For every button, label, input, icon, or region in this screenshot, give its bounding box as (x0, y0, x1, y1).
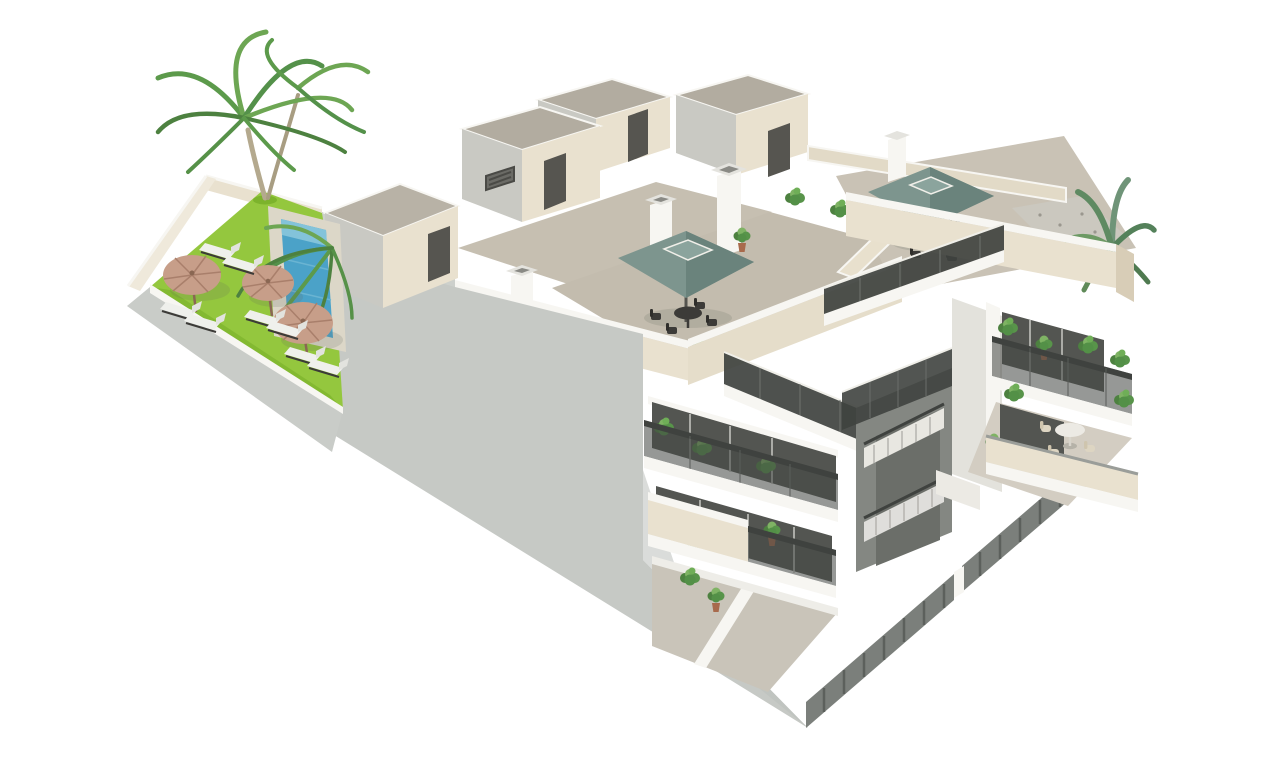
render-canvas (0, 0, 1280, 768)
palm-tree (158, 32, 368, 205)
penthouse-door (544, 153, 566, 210)
penthouse-door (428, 226, 450, 282)
penthouse-stair-box-1 (462, 107, 600, 222)
penthouse-stair-box-3 (676, 75, 808, 177)
penthouse-door (768, 123, 790, 177)
garden (127, 32, 368, 452)
privacy-fence (806, 574, 954, 728)
penthouse-door (628, 109, 648, 162)
staircase (842, 298, 1002, 572)
